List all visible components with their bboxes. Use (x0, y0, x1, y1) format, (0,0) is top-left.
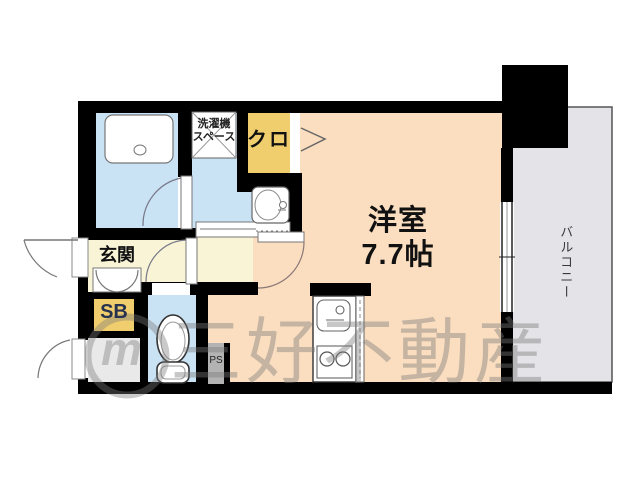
wall-left-middle (78, 277, 88, 340)
window-balcony (499, 202, 515, 312)
washer-space-label-line1: 洗濯機 (198, 118, 231, 130)
entrance-door-icon (24, 238, 88, 277)
storage-door-icon (38, 339, 85, 379)
main-room-label: 洋室7.7帖 (333, 204, 463, 272)
wall-right-upper (501, 148, 513, 203)
washbasin-icon (252, 187, 289, 223)
watermark-logo-letter: m (101, 324, 142, 375)
wall-left-upper (78, 101, 96, 240)
balcony-label: バルコニー (558, 225, 572, 300)
main-room-name: 洋室 (368, 205, 428, 237)
pillar-top-right (502, 65, 568, 148)
wall-top (78, 101, 505, 113)
wall-kitchen-top (310, 283, 371, 296)
shoebox-label: SB (94, 301, 134, 323)
closet-label: クロ (246, 129, 292, 151)
shoebox-double-door-icon (93, 268, 141, 292)
watermark-company-name: 三好不動産 (170, 314, 550, 393)
entrance-label: 玄関 (88, 246, 146, 266)
main-room-size: 7.7帖 (361, 239, 434, 271)
washer-space-label-line2: スペース (193, 131, 236, 143)
toilet-door-threshold (152, 283, 190, 295)
wall-bathroom-bottom (78, 228, 196, 240)
washer-space-label: 洗濯機スペース (189, 118, 239, 144)
floorplan-canvas: 洋室7.7帖 玄関 SB クロ 洗濯機スペース PS バルコニー m 三好不動産 (0, 0, 640, 480)
bathtub-icon (105, 115, 173, 163)
floorplan-drawing (0, 0, 640, 480)
main-room-area-door-side (253, 237, 300, 295)
